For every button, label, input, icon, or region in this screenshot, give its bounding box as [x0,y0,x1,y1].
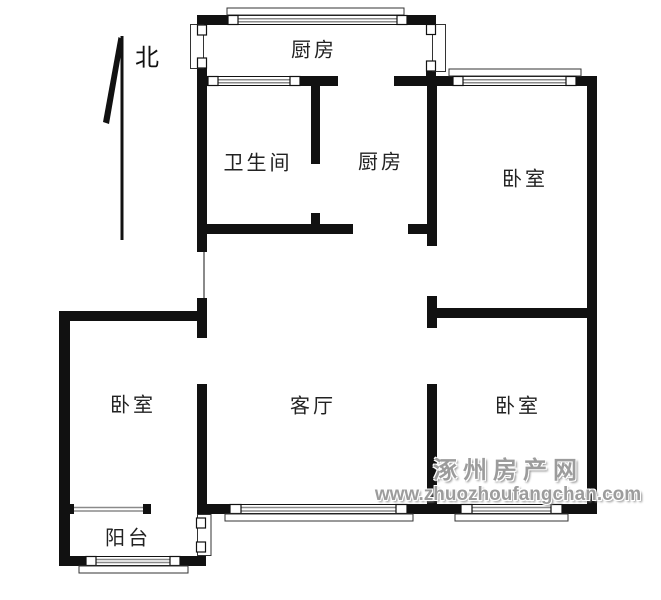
wall-segment [587,76,597,514]
watermark-site-name: 涿州房产网 [375,458,641,484]
room-label-living-room: 客厅 [290,390,336,419]
room-label-bedroom-northeast: 卧室 [502,163,548,192]
wall-segment [59,311,207,321]
window-kitchen-north-left [191,25,208,69]
wall-segment [427,76,437,246]
window-balcony-divider [74,505,143,513]
wall-segment [143,504,151,514]
floor-plan-drawing [0,0,661,600]
room-label-bedroom-southeast: 卧室 [495,390,541,419]
door-opening-line [203,252,205,298]
window-bathroom [208,77,300,86]
watermark-site-url: www.zhuozhoufangchan.com [375,484,641,506]
wall-segment [427,296,437,328]
window-living-room [225,505,413,522]
room-label-bathroom: 卫生间 [224,147,293,176]
wall-segment [59,504,74,514]
north-arrow-icon [103,36,124,240]
wall-segment [197,384,207,514]
room-label-balcony: 阳台 [105,522,151,551]
room-label-kitchen-middle: 厨房 [358,146,404,175]
door-balcony-side [197,515,212,556]
window-bedroom-northeast [449,69,581,86]
watermark: 涿州房产网 www.zhuozhoufangchan.com [375,458,641,506]
room-label-bedroom-west: 卧室 [110,389,156,418]
wall-segment [59,311,70,566]
window-kitchen-north-right [426,24,446,72]
compass-north-label: 北 [135,38,159,73]
window-kitchen-north-top [227,8,407,25]
wall-segment [311,76,320,164]
room-label-kitchen-north: 厨房 [291,34,337,63]
wall-segment [197,224,353,234]
wall-segment [437,308,597,318]
window-balcony-south [79,557,188,574]
floor-plan: 北 厨房 卫生间 厨房 卧室 卧室 客厅 卧室 阳台 涿州房产网 www.zhu… [0,0,661,600]
window-bedroom-southeast [455,505,568,522]
